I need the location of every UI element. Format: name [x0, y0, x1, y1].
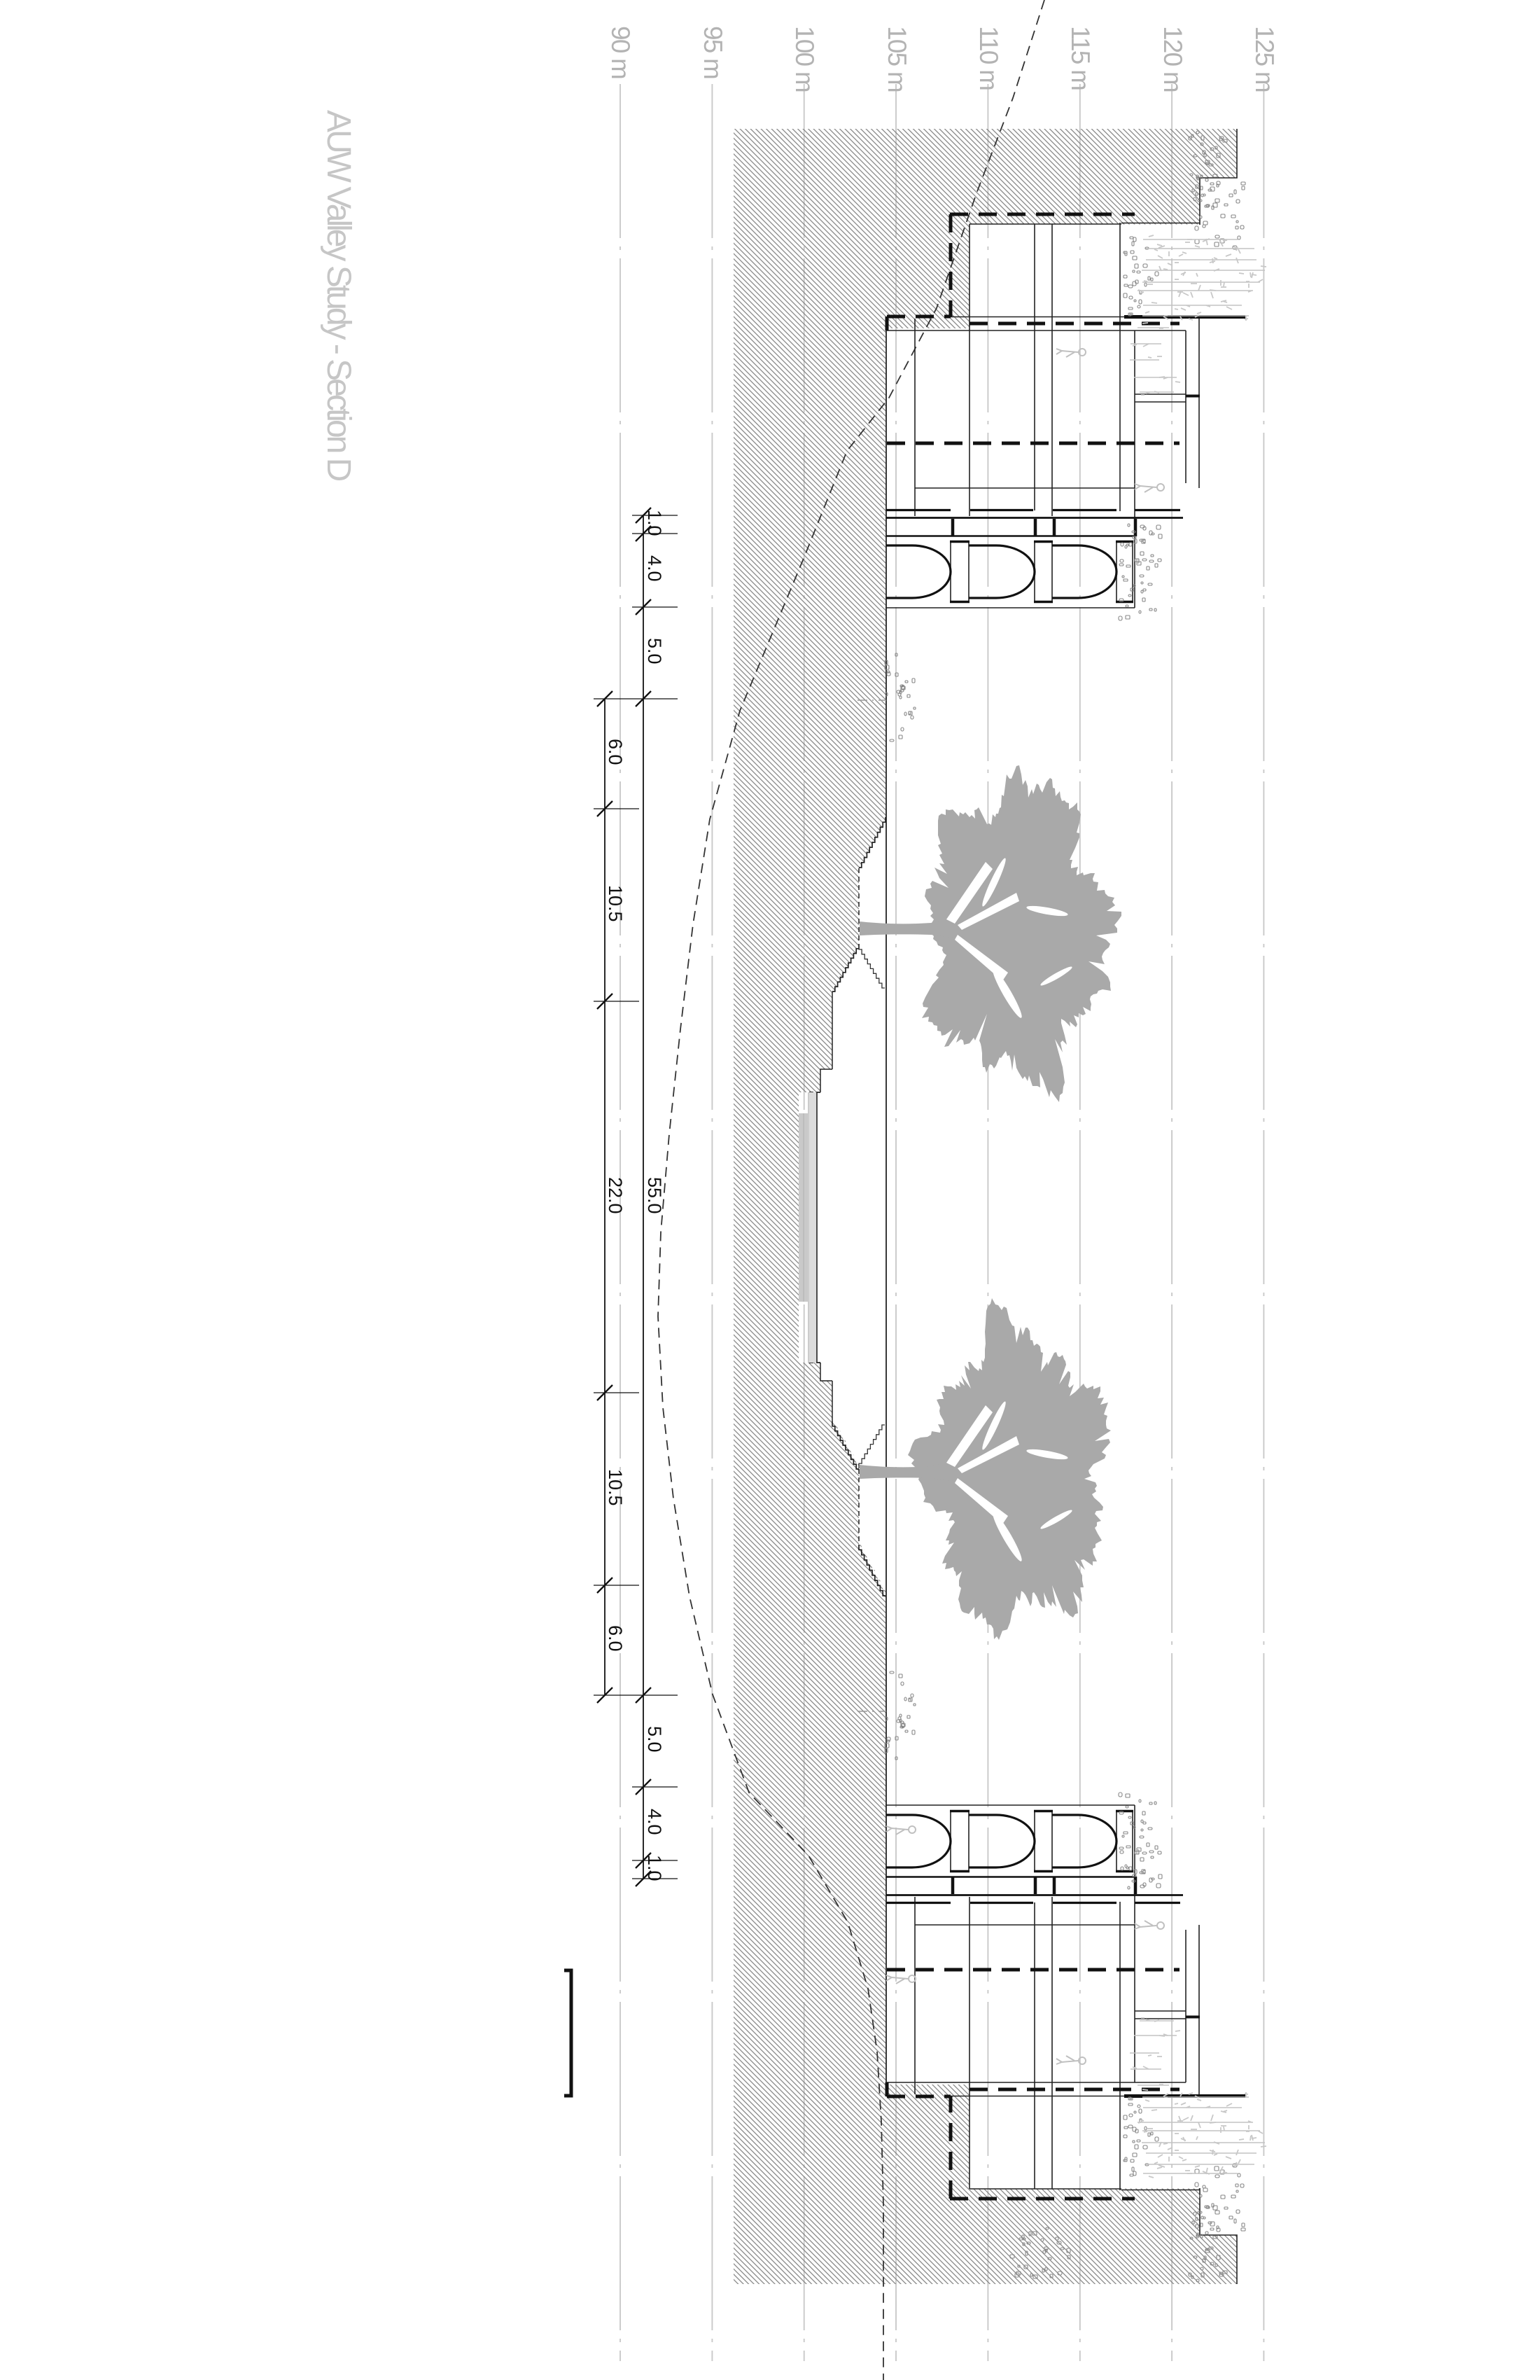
svg-text:105 m: 105 m	[883, 26, 911, 92]
svg-text:1.0: 1.0	[644, 1855, 665, 1881]
svg-text:125 m: 125 m	[1250, 26, 1279, 92]
svg-text:100 m: 100 m	[790, 26, 819, 92]
svg-text:6.0: 6.0	[605, 739, 626, 765]
svg-text:95 m: 95 m	[699, 26, 727, 78]
svg-text:55.0: 55.0	[644, 1177, 665, 1214]
svg-text:5.0: 5.0	[644, 638, 665, 664]
svg-text:115 m: 115 m	[1066, 26, 1095, 90]
svg-text:10.5: 10.5	[605, 1469, 626, 1506]
svg-text:120 m: 120 m	[1158, 26, 1187, 92]
svg-text:90 m: 90 m	[606, 26, 635, 78]
svg-text:110 m: 110 m	[974, 26, 1003, 90]
svg-text:5.0: 5.0	[644, 1726, 665, 1753]
svg-text:4.0: 4.0	[644, 1809, 665, 1835]
svg-text:4.0: 4.0	[644, 555, 665, 582]
svg-text:1.0: 1.0	[644, 510, 665, 536]
svg-text:AUW Valley Study - Section D: AUW Valley Study - Section D	[320, 110, 357, 481]
svg-text:10.5: 10.5	[605, 885, 626, 922]
svg-text:6.0: 6.0	[605, 1625, 626, 1652]
svg-text:22.0: 22.0	[605, 1177, 626, 1214]
